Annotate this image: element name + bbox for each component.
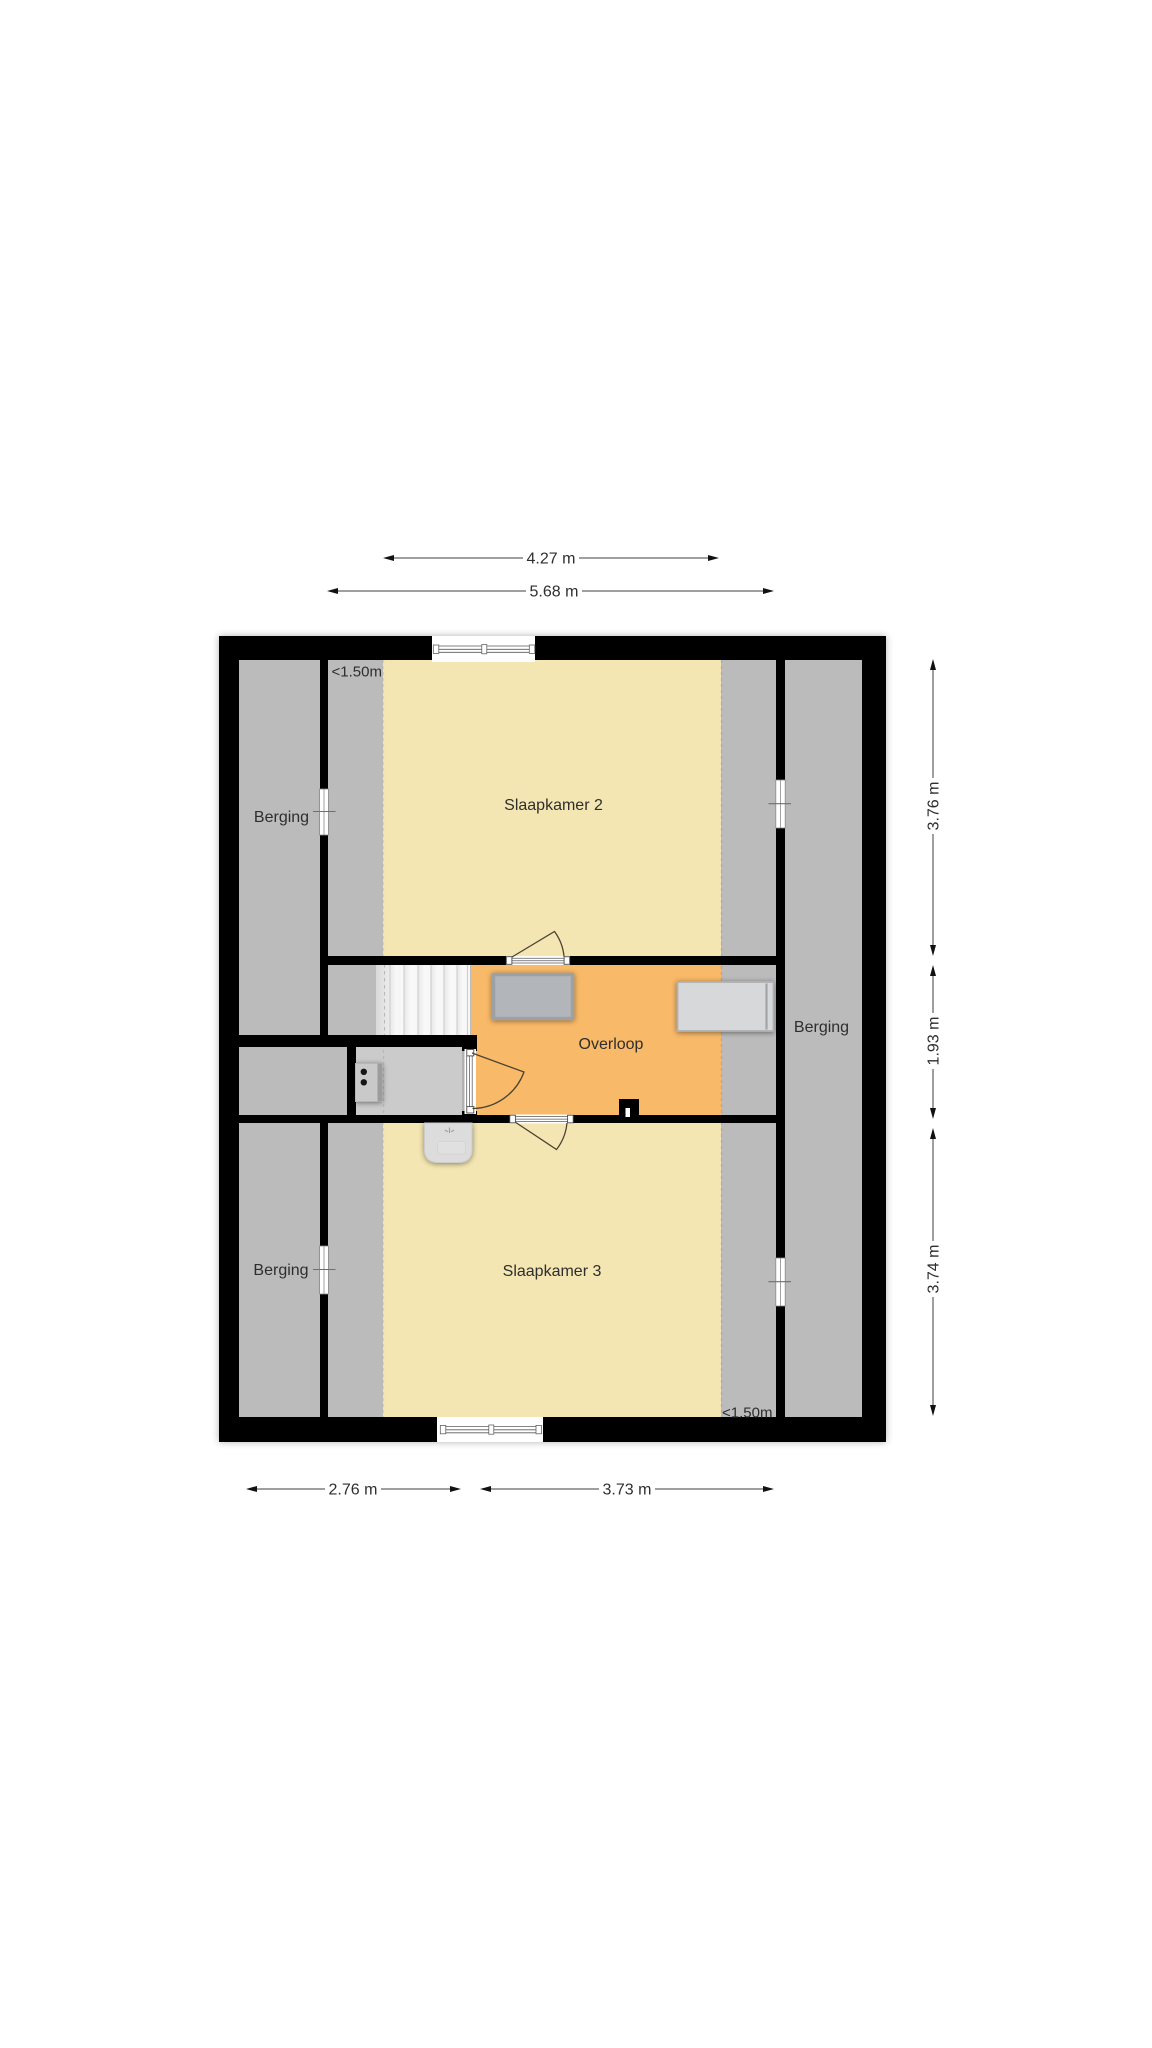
svg-text:Overloop: Overloop (579, 1036, 644, 1053)
svg-text:3.74 m: 3.74 m (926, 1245, 943, 1294)
svg-text:Berging: Berging (254, 809, 309, 826)
svg-text:Slaapkamer 3: Slaapkamer 3 (503, 1263, 602, 1280)
svg-text:2.76 m: 2.76 m (329, 1482, 378, 1499)
svg-text:Slaapkamer 2: Slaapkamer 2 (504, 797, 603, 814)
svg-text:Berging: Berging (794, 1019, 849, 1036)
svg-text:1.93 m: 1.93 m (926, 1017, 943, 1066)
svg-text:<1.50m: <1.50m (332, 664, 382, 681)
svg-text:Berging: Berging (253, 1262, 308, 1279)
svg-text:3.73 m: 3.73 m (603, 1482, 652, 1499)
svg-text:5.68 m: 5.68 m (530, 584, 579, 601)
svg-text:<1.50m: <1.50m (722, 1405, 772, 1422)
svg-text:3.76 m: 3.76 m (926, 782, 943, 831)
svg-text:4.27 m: 4.27 m (527, 551, 576, 568)
